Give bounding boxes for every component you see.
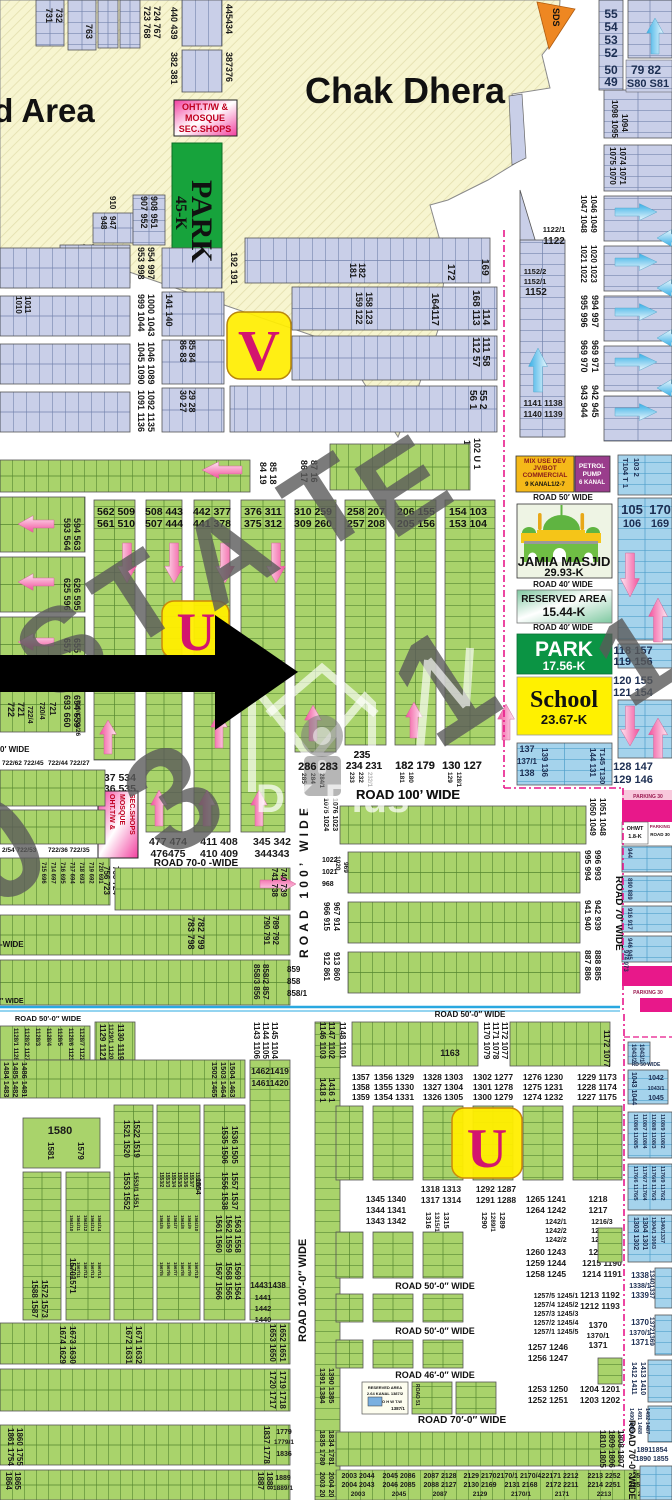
svg-text:1128/6 1123: 1128/6 1123 bbox=[67, 1028, 73, 1061]
svg-text:1051 1048: 1051 1048 bbox=[598, 798, 607, 836]
svg-text:U: U bbox=[467, 1118, 507, 1180]
svg-text:1553/8: 1553/8 bbox=[194, 1172, 200, 1188]
svg-text:Chak Dhera: Chak Dhera bbox=[305, 70, 506, 111]
svg-text:1141 1138: 1141 1138 bbox=[523, 398, 563, 408]
svg-text:2045 2086: 2045 2086 bbox=[382, 1473, 415, 1480]
svg-text:45-K: 45-K bbox=[172, 196, 189, 230]
svg-text:954 997: 954 997 bbox=[146, 247, 156, 280]
svg-text:1671 1632: 1671 1632 bbox=[134, 1326, 143, 1364]
svg-text:1371: 1371 bbox=[631, 1338, 649, 1347]
svg-text:130 127: 130 127 bbox=[442, 760, 482, 772]
svg-text:969 970: 969 970 bbox=[579, 340, 589, 373]
svg-text:1300 1279: 1300 1279 bbox=[473, 1092, 513, 1102]
svg-text:1147 1102: 1147 1102 bbox=[327, 1022, 336, 1059]
svg-text:2046 2085: 2046 2085 bbox=[382, 1482, 415, 1489]
svg-text:1.8-K: 1.8-K bbox=[628, 834, 641, 840]
svg-text:1092 1135: 1092 1135 bbox=[146, 390, 156, 432]
svg-text:1128/7 1122: 1128/7 1122 bbox=[78, 1028, 84, 1061]
svg-text:235: 235 bbox=[354, 750, 371, 761]
svg-text:1561/12: 1561/12 bbox=[83, 1215, 88, 1232]
svg-text:ROAD 51: ROAD 51 bbox=[414, 1384, 420, 1406]
svg-text:912 861: 912 861 bbox=[322, 952, 331, 981]
svg-text:887 886: 887 886 bbox=[583, 950, 593, 981]
svg-text:138: 138 bbox=[519, 768, 534, 778]
svg-text:562 509: 562 509 bbox=[97, 506, 135, 518]
svg-text:2213: 2213 bbox=[597, 1491, 612, 1498]
svg-text:1148 1101: 1148 1101 bbox=[338, 1022, 347, 1059]
svg-text:967 914: 967 914 bbox=[332, 902, 341, 931]
svg-text:1257/2 1245/4: 1257/2 1245/4 bbox=[534, 1320, 579, 1327]
svg-text:164117: 164117 bbox=[429, 293, 440, 326]
svg-text:ROAD 50′ WIDE: ROAD 50′ WIDE bbox=[533, 493, 593, 502]
svg-text:1260 1243: 1260 1243 bbox=[526, 1247, 566, 1257]
svg-text:1485 1482: 1485 1482 bbox=[11, 1062, 20, 1097]
svg-text:344343: 344343 bbox=[254, 848, 289, 860]
svg-text:1567/9: 1567/9 bbox=[187, 1262, 192, 1276]
svg-text:29 28: 29 28 bbox=[187, 390, 197, 413]
svg-text:ROAD 50′-0″ WIDE: ROAD 50′-0″ WIDE bbox=[435, 1010, 506, 1019]
svg-text:944: 944 bbox=[626, 848, 632, 859]
svg-text:995 994: 995 994 bbox=[583, 850, 593, 881]
svg-text:731: 731 bbox=[44, 8, 54, 23]
svg-text:53: 53 bbox=[604, 33, 618, 47]
svg-text:1441: 1441 bbox=[255, 1293, 272, 1302]
svg-text:1253 1250: 1253 1250 bbox=[528, 1384, 568, 1394]
svg-text:ROAD 40′ WIDE: ROAD 40′ WIDE bbox=[533, 580, 593, 589]
svg-text:1779/1: 1779/1 bbox=[274, 1439, 294, 1446]
svg-text:2087: 2087 bbox=[433, 1491, 448, 1498]
svg-text:14611420: 14611420 bbox=[251, 1078, 289, 1088]
svg-text:102 U 1: 102 U 1 bbox=[472, 438, 482, 470]
svg-text:1418 1: 1418 1 bbox=[318, 1078, 327, 1103]
svg-text:1170 1079: 1170 1079 bbox=[482, 1022, 491, 1060]
svg-text:MIX USE DEV: MIX USE DEV bbox=[524, 458, 567, 465]
svg-text:1145 1104: 1145 1104 bbox=[270, 1022, 279, 1059]
svg-text:1317 1314: 1317 1314 bbox=[421, 1195, 461, 1205]
svg-text:ROAD 30: ROAD 30 bbox=[650, 832, 670, 837]
svg-text:MOSQUE: MOSQUE bbox=[185, 113, 225, 123]
svg-text:52: 52 bbox=[604, 46, 618, 60]
svg-text:1370/1: 1370/1 bbox=[587, 1331, 610, 1340]
svg-text:1213 1192: 1213 1192 bbox=[580, 1290, 620, 1300]
svg-text:1045 1090: 1045 1090 bbox=[136, 342, 146, 385]
svg-text:763: 763 bbox=[84, 24, 94, 39]
svg-text:722/36 722/35: 722/36 722/35 bbox=[48, 847, 90, 854]
svg-text:1217: 1217 bbox=[589, 1205, 608, 1215]
svg-text:888 885: 888 885 bbox=[593, 950, 603, 981]
svg-text:1561/6: 1561/6 bbox=[166, 1215, 171, 1229]
svg-text:994 997: 994 997 bbox=[590, 295, 600, 328]
svg-text:1318 1313: 1318 1313 bbox=[421, 1184, 461, 1194]
svg-text:RD 50 WIDE: RD 50 WIDE bbox=[632, 1062, 661, 1068]
svg-text:1354 1331: 1354 1331 bbox=[374, 1092, 414, 1102]
svg-text:139 136: 139 136 bbox=[540, 748, 549, 777]
svg-text:112 57: 112 57 bbox=[470, 337, 481, 367]
svg-text:1889/1: 1889/1 bbox=[273, 1485, 293, 1492]
svg-text:1345 1340: 1345 1340 bbox=[366, 1194, 406, 1204]
svg-text:1340/1337: 1340/1337 bbox=[659, 1217, 665, 1243]
svg-text:1502 1465: 1502 1465 bbox=[210, 1062, 219, 1097]
svg-text:49: 49 bbox=[604, 75, 618, 89]
svg-text:54: 54 bbox=[604, 20, 618, 34]
svg-text:17.56-K: 17.56-K bbox=[543, 659, 586, 673]
svg-text:722/4: 722/4 bbox=[26, 706, 33, 724]
svg-text:234 231: 234 231 bbox=[346, 761, 383, 772]
svg-text:129 146: 129 146 bbox=[613, 774, 653, 786]
svg-text:1561/11: 1561/11 bbox=[76, 1215, 81, 1232]
svg-text:790 791: 790 791 bbox=[262, 916, 271, 945]
svg-text:85 84: 85 84 bbox=[187, 340, 197, 363]
svg-text:1339: 1339 bbox=[631, 1291, 649, 1300]
svg-text:School: School bbox=[530, 687, 598, 713]
svg-text:V: V bbox=[238, 318, 280, 383]
svg-text:999 1044: 999 1044 bbox=[136, 294, 146, 332]
svg-text:SDS: SDS bbox=[551, 8, 561, 27]
svg-text:2087 2128: 2087 2128 bbox=[423, 1473, 456, 1480]
svg-text:1204 1201: 1204 1201 bbox=[580, 1384, 620, 1394]
svg-text:1357: 1357 bbox=[352, 1073, 370, 1082]
svg-text:1563 1558: 1563 1558 bbox=[233, 1215, 242, 1253]
svg-text:1000 1043: 1000 1043 bbox=[146, 294, 156, 337]
svg-text:1572 1573: 1572 1573 bbox=[40, 1280, 49, 1318]
svg-text:1043/1: 1043/1 bbox=[648, 1086, 665, 1092]
svg-text:6 KANAL: 6 KANAL bbox=[579, 480, 605, 486]
svg-text:1128/1 1128: 1128/1 1128 bbox=[12, 1028, 18, 1061]
svg-text:1521 1520: 1521 1520 bbox=[122, 1120, 131, 1158]
svg-text:1094: 1094 bbox=[620, 114, 629, 132]
svg-text:594 563: 594 563 bbox=[72, 518, 82, 551]
svg-text:1356 1329: 1356 1329 bbox=[374, 1072, 414, 1082]
svg-text:1779: 1779 bbox=[276, 1429, 292, 1436]
svg-text:996 993: 996 993 bbox=[593, 850, 603, 881]
svg-text:1522 1519: 1522 1519 bbox=[132, 1120, 141, 1158]
svg-text:1257 1246: 1257 1246 bbox=[528, 1342, 568, 1352]
svg-text:858/1: 858/1 bbox=[287, 989, 308, 998]
svg-text:106: 106 bbox=[623, 518, 641, 530]
svg-text:969 971: 969 971 bbox=[590, 340, 600, 373]
svg-text:1442: 1442 bbox=[255, 1304, 272, 1313]
svg-text:1653 1650: 1653 1650 bbox=[268, 1324, 277, 1362]
svg-text:1274 1232: 1274 1232 bbox=[523, 1092, 563, 1102]
svg-text:1122/1: 1122/1 bbox=[543, 225, 566, 234]
svg-text:OHT.T/W &: OHT.T/W & bbox=[182, 102, 228, 112]
svg-text:942 939: 942 939 bbox=[593, 900, 603, 931]
svg-text:1561/14: 1561/14 bbox=[97, 1215, 102, 1232]
svg-text:169: 169 bbox=[479, 259, 490, 276]
svg-text:1338/1: 1338/1 bbox=[629, 1283, 651, 1290]
svg-text:1556 1538: 1556 1538 bbox=[220, 1172, 229, 1210]
svg-text:1303 1302: 1303 1302 bbox=[632, 1217, 639, 1250]
svg-text:1652 1651: 1652 1651 bbox=[278, 1324, 287, 1362]
svg-text:1047 1048: 1047 1048 bbox=[579, 195, 588, 233]
svg-text:966 915: 966 915 bbox=[322, 902, 331, 931]
svg-text:1567/13: 1567/13 bbox=[90, 1262, 95, 1279]
svg-text:9 KANAL1/2-7: 9 KANAL1/2-7 bbox=[525, 482, 565, 488]
svg-text:1492 1487: 1492 1487 bbox=[644, 1408, 650, 1434]
svg-text:859: 859 bbox=[287, 965, 301, 974]
svg-text:2213 2252: 2213 2252 bbox=[587, 1473, 620, 1480]
svg-text:1257/5 1245/1: 1257/5 1245/1 bbox=[534, 1293, 579, 1300]
svg-text:144 131: 144 131 bbox=[588, 748, 597, 777]
svg-text:0′ WIDE: 0′ WIDE bbox=[0, 745, 30, 754]
svg-text:1045: 1045 bbox=[648, 1095, 664, 1102]
svg-text:732: 732 bbox=[54, 8, 64, 23]
svg-text:-WIDE: -WIDE bbox=[0, 940, 24, 949]
svg-text:789 792: 789 792 bbox=[271, 916, 280, 945]
svg-text:2004 20: 2004 20 bbox=[327, 1472, 334, 1497]
svg-text:1567/11: 1567/11 bbox=[76, 1262, 81, 1279]
svg-text:1553/3: 1553/3 bbox=[164, 1172, 170, 1188]
svg-text:1098 1095: 1098 1095 bbox=[610, 100, 619, 138]
svg-text:913 860: 913 860 bbox=[332, 952, 341, 981]
svg-text:1413 1410: 1413 1410 bbox=[639, 1362, 646, 1395]
svg-text:1553/1 1551: 1553/1 1551 bbox=[132, 1172, 139, 1209]
svg-text:1567/10: 1567/10 bbox=[69, 1262, 74, 1279]
svg-text:1265 1241: 1265 1241 bbox=[526, 1194, 566, 1204]
svg-text:2129: 2129 bbox=[473, 1491, 488, 1498]
svg-text:RESERVED AREA: RESERVED AREA bbox=[521, 594, 607, 605]
svg-text:1887: 1887 bbox=[256, 1472, 265, 1490]
svg-text:1291 1288: 1291 1288 bbox=[476, 1195, 516, 1205]
svg-text:858: 858 bbox=[287, 977, 301, 986]
svg-text:1290: 1290 bbox=[480, 1212, 489, 1229]
svg-text:OHWT: OHWT bbox=[627, 826, 644, 832]
svg-text:2003: 2003 bbox=[351, 1491, 366, 1498]
svg-text:440 439: 440 439 bbox=[169, 7, 179, 40]
svg-text:″ WIDE: ″ WIDE bbox=[0, 998, 24, 1005]
svg-text:d Area: d Area bbox=[0, 92, 95, 129]
svg-text:1203 1202: 1203 1202 bbox=[580, 1395, 620, 1405]
svg-text:1557 1537: 1557 1537 bbox=[230, 1172, 239, 1210]
svg-text:1010: 1010 bbox=[14, 296, 23, 314]
svg-text:1218: 1218 bbox=[589, 1194, 608, 1204]
svg-text:1176/9 1176/2: 1176/9 1176/2 bbox=[659, 1166, 665, 1201]
svg-text:382 381: 382 381 bbox=[169, 52, 179, 85]
svg-text:1143 1106: 1143 1106 bbox=[252, 1022, 261, 1059]
svg-text:1046 1049: 1046 1049 bbox=[589, 195, 598, 233]
svg-text:1043/1: 1043/1 bbox=[638, 1044, 644, 1063]
svg-text:1176/8 1176/3: 1176/8 1176/3 bbox=[650, 1166, 656, 1201]
svg-text:2172 2211: 2172 2211 bbox=[546, 1482, 579, 1489]
svg-text:995 996: 995 996 bbox=[579, 295, 589, 328]
svg-text:1144 1105: 1144 1105 bbox=[261, 1022, 270, 1059]
svg-text:1264 1242: 1264 1242 bbox=[526, 1205, 566, 1215]
svg-text:1043 1044: 1043 1044 bbox=[630, 1072, 637, 1105]
svg-text:1128/4: 1128/4 bbox=[45, 1028, 51, 1047]
svg-text:159 122: 159 122 bbox=[354, 292, 364, 325]
svg-text:858/3 856: 858/3 856 bbox=[252, 964, 261, 1000]
svg-text:1042: 1042 bbox=[648, 1075, 664, 1082]
svg-text:2129 2170: 2129 2170 bbox=[463, 1473, 496, 1480]
svg-text:1719 1718: 1719 1718 bbox=[278, 1371, 287, 1409]
svg-text:1412 1411: 1412 1411 bbox=[630, 1362, 637, 1395]
svg-text:907 952: 907 952 bbox=[139, 196, 149, 229]
svg-text:1315/1: 1315/1 bbox=[433, 1212, 440, 1232]
svg-text:1567/12: 1567/12 bbox=[83, 1262, 88, 1279]
svg-text:1258 1245: 1258 1245 bbox=[526, 1269, 566, 1279]
svg-text:916 917: 916 917 bbox=[626, 908, 632, 930]
svg-text:170: 170 bbox=[649, 502, 671, 517]
svg-text:1130 1119: 1130 1119 bbox=[116, 1024, 125, 1061]
svg-text:1561/10: 1561/10 bbox=[194, 1215, 199, 1232]
svg-text:1229 1173: 1229 1173 bbox=[577, 1072, 617, 1082]
svg-text:181: 181 bbox=[348, 263, 358, 278]
svg-text:1561/5: 1561/5 bbox=[159, 1215, 164, 1229]
svg-text:1890 1855: 1890 1855 bbox=[635, 1456, 668, 1463]
svg-text:1275 1231: 1275 1231 bbox=[523, 1082, 563, 1092]
svg-text:1391 1384: 1391 1384 bbox=[318, 1368, 327, 1404]
svg-text:1567/6: 1567/6 bbox=[166, 1262, 171, 1276]
svg-text:1588 1587: 1588 1587 bbox=[30, 1280, 39, 1318]
svg-text:2.64 KANAL 1387/2: 2.64 KANAL 1387/2 bbox=[367, 1391, 404, 1396]
svg-text:1809 1806: 1809 1806 bbox=[607, 1430, 616, 1468]
svg-text:1152: 1152 bbox=[525, 287, 547, 298]
svg-text:1581: 1581 bbox=[46, 1142, 55, 1160]
svg-text:1128/2 1127: 1128/2 1127 bbox=[23, 1028, 29, 1061]
svg-text:1146 1103: 1146 1103 bbox=[318, 1022, 327, 1059]
svg-text:756 723: 756 723 bbox=[102, 866, 111, 895]
svg-text:2004 2043: 2004 2043 bbox=[341, 1482, 374, 1489]
svg-text:14431438: 14431438 bbox=[250, 1281, 286, 1290]
svg-text:1327 1304: 1327 1304 bbox=[423, 1082, 463, 1092]
svg-text:968: 968 bbox=[322, 881, 334, 888]
svg-text:T145 T130: T145 T130 bbox=[598, 748, 607, 784]
svg-text:13401337: 13401337 bbox=[648, 1270, 655, 1299]
svg-text:86 83: 86 83 bbox=[178, 340, 188, 363]
svg-text:953 998: 953 998 bbox=[136, 247, 146, 280]
svg-text:1370/1: 1370/1 bbox=[629, 1330, 651, 1337]
svg-text:COMMERCIAL: COMMERCIAL bbox=[523, 472, 568, 479]
svg-text:1370: 1370 bbox=[631, 1318, 649, 1327]
svg-text:1810 1805: 1810 1805 bbox=[598, 1430, 607, 1468]
svg-text:783 798: 783 798 bbox=[186, 917, 196, 950]
svg-text:ROAD 50′-0″ WIDE: ROAD 50′-0″ WIDE bbox=[395, 1281, 474, 1291]
svg-text:2088 2127: 2088 2127 bbox=[423, 1482, 456, 1489]
svg-text:1567/8: 1567/8 bbox=[180, 1262, 185, 1276]
svg-text:182 179: 182 179 bbox=[395, 760, 435, 772]
svg-text:722/44 722/27: 722/44 722/27 bbox=[48, 760, 90, 767]
svg-text:1864: 1864 bbox=[4, 1472, 13, 1490]
svg-text:2130 2169: 2130 2169 bbox=[463, 1482, 496, 1489]
svg-text:1568 1565: 1568 1565 bbox=[224, 1262, 233, 1300]
svg-text:55: 55 bbox=[604, 7, 618, 21]
svg-text:PARKING: PARKING bbox=[650, 824, 671, 829]
svg-text:2170/1: 2170/1 bbox=[511, 1491, 531, 1498]
svg-text:1163: 1163 bbox=[440, 1048, 460, 1058]
svg-text:724 767: 724 767 bbox=[152, 6, 162, 39]
svg-text:1561/13: 1561/13 bbox=[90, 1215, 95, 1232]
svg-text:1580: 1580 bbox=[48, 1125, 72, 1137]
svg-text:56 1: 56 1 bbox=[467, 390, 478, 410]
svg-text:890 889: 890 889 bbox=[626, 878, 632, 900]
svg-text:1720 1717: 1720 1717 bbox=[268, 1371, 277, 1409]
svg-text:1227 1175: 1227 1175 bbox=[577, 1092, 617, 1102]
svg-text:943 944: 943 944 bbox=[579, 385, 589, 418]
svg-text:1344 1341: 1344 1341 bbox=[366, 1205, 406, 1215]
svg-text:942 945: 942 945 bbox=[590, 385, 600, 418]
svg-text:1562 1559: 1562 1559 bbox=[224, 1215, 233, 1253]
svg-text:2171: 2171 bbox=[555, 1491, 570, 1498]
svg-text:1252 1251: 1252 1251 bbox=[528, 1395, 568, 1405]
svg-text:105: 105 bbox=[621, 502, 643, 517]
svg-text:PETROL: PETROL bbox=[579, 463, 605, 470]
svg-text:722/62 722/45: 722/62 722/45 bbox=[2, 760, 44, 767]
svg-text:1387/1: 1387/1 bbox=[391, 1406, 405, 1411]
svg-text:1567/10: 1567/10 bbox=[194, 1262, 199, 1279]
svg-text:1860 1755: 1860 1755 bbox=[15, 1428, 24, 1466]
svg-text:1108/7 1108/4: 1108/7 1108/4 bbox=[641, 1114, 647, 1150]
svg-text:1355 1330: 1355 1330 bbox=[374, 1082, 414, 1092]
svg-text:1259 1244: 1259 1244 bbox=[526, 1258, 566, 1268]
svg-text:55 2: 55 2 bbox=[477, 390, 488, 410]
svg-text:168 113: 168 113 bbox=[470, 290, 481, 326]
svg-text:1289: 1289 bbox=[498, 1212, 507, 1229]
svg-text:1370: 1370 bbox=[589, 1320, 608, 1330]
svg-text:ROAD 100′-0″ WIDE: ROAD 100′-0″ WIDE bbox=[297, 1239, 309, 1342]
svg-text:192 191: 192 191 bbox=[229, 252, 239, 285]
svg-text:172: 172 bbox=[445, 264, 456, 281]
svg-text:1214 1191: 1214 1191 bbox=[582, 1269, 622, 1279]
svg-text:720/4: 720/4 bbox=[38, 702, 45, 720]
svg-text:1304/1 300/3: 1304/1 300/3 bbox=[650, 1217, 656, 1249]
svg-text:1304 1301: 1304 1301 bbox=[641, 1217, 648, 1250]
svg-text:1553/6: 1553/6 bbox=[182, 1172, 188, 1188]
svg-text:PARKING 30: PARKING 30 bbox=[633, 990, 663, 996]
svg-text:1242/2: 1242/2 bbox=[545, 1237, 567, 1244]
svg-text:1579: 1579 bbox=[76, 1142, 85, 1160]
svg-text:1861 1754: 1861 1754 bbox=[6, 1428, 15, 1466]
svg-text:1834 1781: 1834 1781 bbox=[327, 1430, 336, 1465]
svg-text:1242/2: 1242/2 bbox=[545, 1228, 567, 1235]
svg-text:1561/9: 1561/9 bbox=[187, 1215, 192, 1229]
svg-text:947: 947 bbox=[108, 216, 117, 230]
svg-text:30 27: 30 27 bbox=[178, 390, 188, 413]
svg-text:387376: 387376 bbox=[224, 52, 234, 82]
svg-text:1561 1560: 1561 1560 bbox=[214, 1215, 223, 1253]
svg-text:1553/4: 1553/4 bbox=[170, 1172, 176, 1188]
svg-text:OHT.T/W &: OHT.T/W & bbox=[108, 794, 115, 830]
svg-text:1503 1464: 1503 1464 bbox=[219, 1062, 228, 1098]
svg-text:PARKING 30: PARKING 30 bbox=[633, 794, 663, 800]
svg-text:1257/4 1245/2: 1257/4 1245/2 bbox=[534, 1302, 579, 1309]
svg-text:1315: 1315 bbox=[442, 1212, 451, 1229]
svg-text:1486 1481: 1486 1481 bbox=[20, 1062, 29, 1097]
svg-text:1553/7: 1553/7 bbox=[188, 1172, 194, 1188]
svg-text:169: 169 bbox=[651, 518, 669, 530]
svg-text:29.93-K: 29.93-K bbox=[544, 567, 583, 579]
svg-text:O H W T.W: O H W T.W bbox=[382, 1399, 402, 1404]
svg-text:1889: 1889 bbox=[275, 1475, 291, 1482]
svg-text:1074 1071: 1074 1071 bbox=[618, 147, 627, 185]
svg-text:908 951: 908 951 bbox=[149, 196, 159, 229]
svg-text:137/1: 137/1 bbox=[517, 757, 538, 766]
svg-text:2131 2168: 2131 2168 bbox=[504, 1482, 537, 1489]
svg-text:1328 1303: 1328 1303 bbox=[423, 1072, 463, 1082]
svg-text:1326 1305: 1326 1305 bbox=[423, 1092, 463, 1102]
svg-text:1108/8 1108/3: 1108/8 1108/3 bbox=[650, 1114, 656, 1149]
svg-text:1228 1174: 1228 1174 bbox=[577, 1082, 617, 1092]
svg-text:1021 1022: 1021 1022 bbox=[579, 245, 588, 283]
svg-text:1836: 1836 bbox=[276, 1451, 292, 1458]
svg-text:948: 948 bbox=[99, 216, 108, 230]
svg-text:1390 1385: 1390 1385 bbox=[327, 1368, 336, 1403]
svg-text:1553/2: 1553/2 bbox=[158, 1172, 164, 1188]
svg-text:1011: 1011 bbox=[23, 296, 32, 314]
svg-text:1172 1077: 1172 1077 bbox=[602, 1030, 611, 1068]
svg-text:111 58: 111 58 bbox=[480, 337, 491, 367]
svg-text:1338: 1338 bbox=[631, 1271, 649, 1280]
svg-text:445434: 445434 bbox=[224, 4, 234, 34]
